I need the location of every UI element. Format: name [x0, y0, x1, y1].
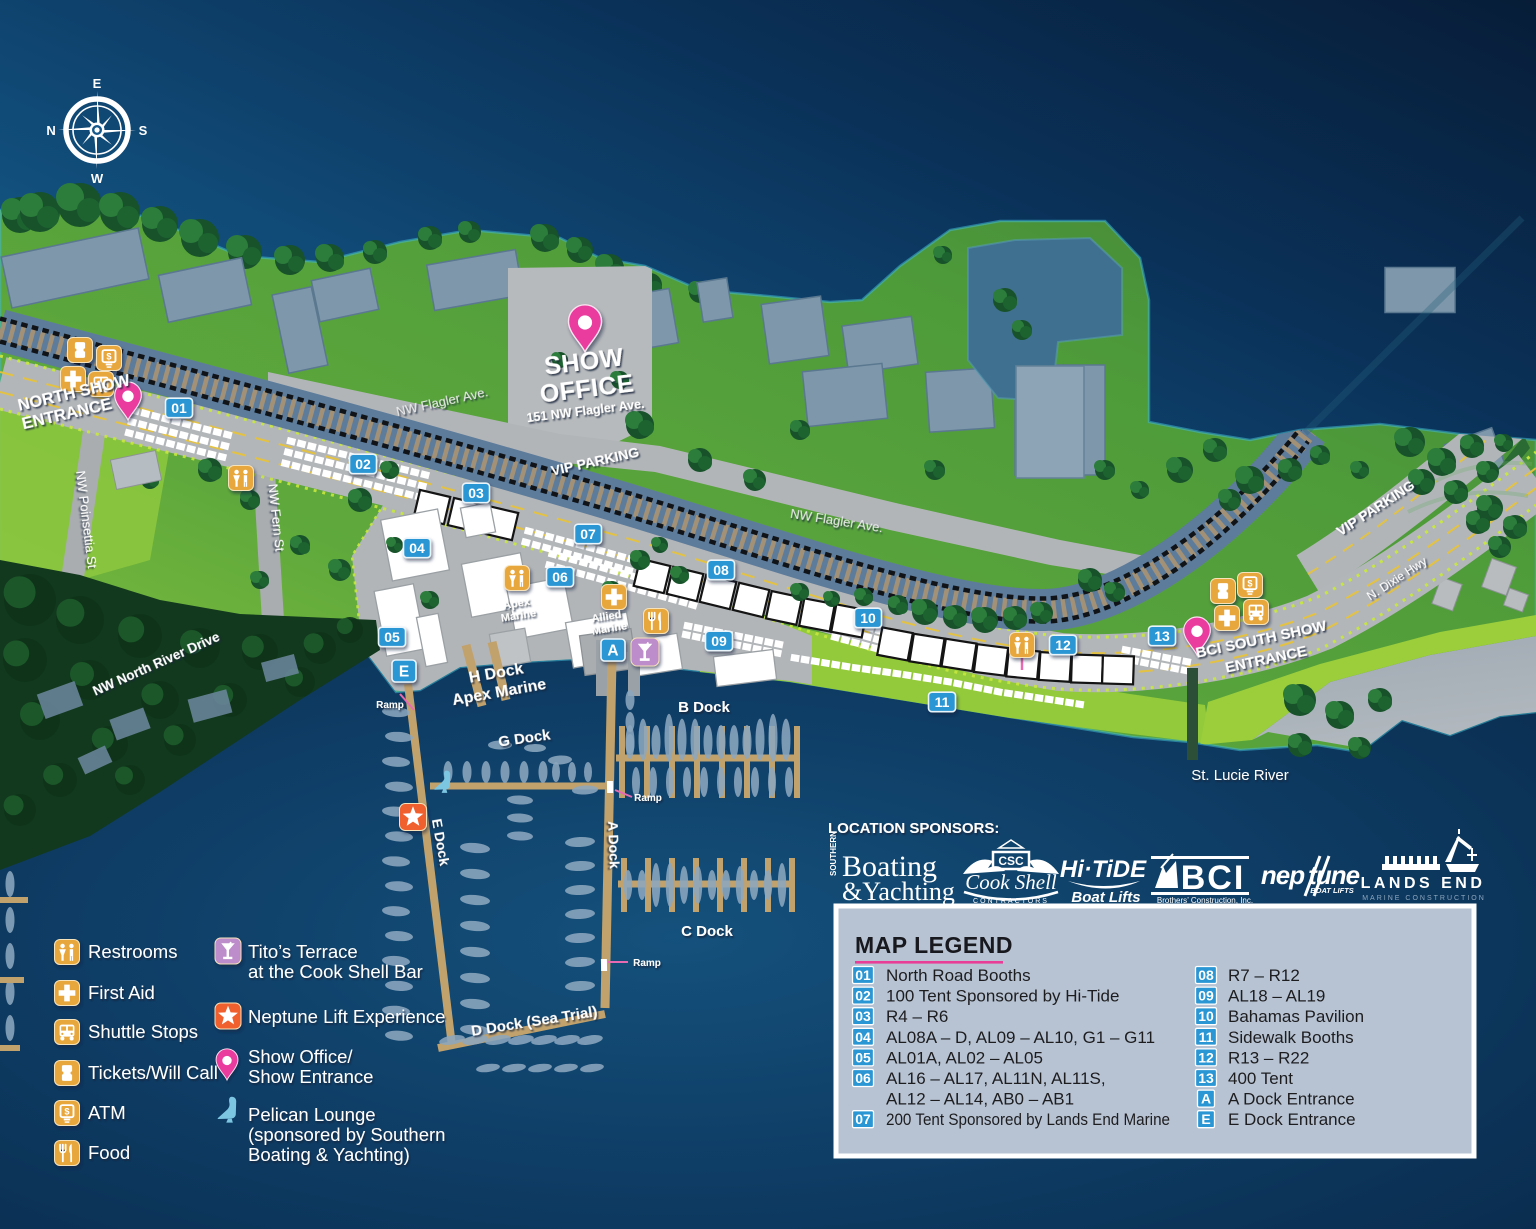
svg-text:R7 – R12: R7 – R12: [1228, 966, 1300, 985]
svg-text:First Aid: First Aid: [88, 982, 155, 1003]
svg-text:Show Office/: Show Office/: [248, 1046, 353, 1067]
svg-text:04: 04: [409, 540, 425, 556]
svg-text:E Dock Entrance: E Dock Entrance: [1228, 1110, 1356, 1129]
svg-text:Tito’s Terrace: Tito’s Terrace: [248, 941, 358, 962]
svg-text:Bahamas Pavilion: Bahamas Pavilion: [1228, 1007, 1364, 1026]
svg-text:A Dock: A Dock: [605, 821, 623, 869]
svg-text:A: A: [1201, 1091, 1211, 1107]
svg-text:13: 13: [1154, 628, 1170, 644]
svg-text:MARINE CONSTRUCTION: MARINE CONSTRUCTION: [1362, 895, 1486, 902]
svg-text:01: 01: [171, 400, 187, 416]
svg-text:A: A: [607, 643, 618, 660]
svg-text:Sidewalk Booths: Sidewalk Booths: [1228, 1028, 1354, 1047]
svg-text:Food: Food: [88, 1142, 130, 1163]
svg-text:01: 01: [855, 967, 871, 983]
svg-text:AL01A, AL02 – AL05: AL01A, AL02 – AL05: [886, 1048, 1043, 1067]
svg-text:MAP LEGEND: MAP LEGEND: [855, 932, 1013, 958]
svg-text:$: $: [106, 352, 112, 362]
svg-text:A Dock Entrance: A Dock Entrance: [1228, 1090, 1355, 1109]
svg-text:&Yachting: &Yachting: [842, 877, 955, 906]
svg-text:Boat Lifts: Boat Lifts: [1071, 889, 1140, 906]
svg-text:Show Entrance: Show Entrance: [248, 1066, 373, 1087]
svg-text:AL18 – AL19: AL18 – AL19: [1228, 987, 1325, 1006]
svg-text:Restrooms: Restrooms: [88, 941, 177, 962]
svg-text:10: 10: [860, 610, 876, 626]
svg-text:LOCATION SPONSORS:: LOCATION SPONSORS:: [828, 820, 999, 837]
svg-text:03: 03: [855, 1008, 871, 1024]
svg-text:Ramp: Ramp: [634, 793, 662, 804]
svg-text:AL08A – D, AL09 – AL10, G1 – G: AL08A – D, AL09 – AL10, G1 – G11: [886, 1028, 1155, 1047]
svg-text:E: E: [93, 76, 102, 91]
svg-text:04: 04: [855, 1029, 871, 1045]
svg-text:12: 12: [1198, 1049, 1214, 1065]
svg-text:02: 02: [355, 456, 371, 472]
svg-text:Tickets/Will Call: Tickets/Will Call: [88, 1062, 218, 1083]
svg-text:200 Tent Sponsored by Lands En: 200 Tent Sponsored by Lands End Marine: [886, 1110, 1170, 1129]
svg-text:R4 – R6: R4 – R6: [886, 1007, 948, 1026]
svg-text:ATM: ATM: [88, 1102, 126, 1123]
svg-text:CSC: CSC: [998, 854, 1024, 868]
svg-text:BCI: BCI: [1181, 859, 1246, 897]
svg-text:Ramp: Ramp: [376, 700, 404, 711]
svg-text:07: 07: [855, 1111, 871, 1127]
svg-text:E: E: [399, 664, 409, 681]
svg-text:St. Lucie River: St. Lucie River: [1191, 767, 1289, 784]
svg-text:B Dock: B Dock: [678, 699, 730, 716]
svg-text:N: N: [46, 123, 55, 138]
svg-text:03: 03: [468, 485, 484, 501]
svg-text:AL16 – AL17, AL11N, AL11S,: AL16 – AL17, AL11N, AL11S,: [886, 1069, 1106, 1088]
svg-text:400 Tent: 400 Tent: [1228, 1069, 1293, 1088]
svg-text:08: 08: [713, 562, 729, 578]
svg-text:11: 11: [935, 694, 950, 710]
svg-text:Pelican Lounge: Pelican Lounge: [248, 1104, 376, 1125]
svg-text:Hi·TiDE: Hi·TiDE: [1060, 856, 1147, 883]
svg-text:05: 05: [855, 1049, 871, 1065]
svg-text:BOAT LIFTS: BOAT LIFTS: [1310, 886, 1354, 895]
svg-text:Shuttle Stops: Shuttle Stops: [88, 1021, 198, 1042]
svg-text:Cook Shell: Cook Shell: [965, 870, 1057, 894]
svg-text:06: 06: [855, 1070, 871, 1086]
svg-text:09: 09: [1198, 988, 1214, 1004]
svg-text:R13 – R22: R13 – R22: [1228, 1048, 1309, 1067]
svg-text:LANDS END: LANDS END: [1361, 875, 1486, 892]
svg-text:E: E: [1201, 1111, 1210, 1127]
svg-text:05: 05: [384, 629, 400, 645]
svg-text:Ramp: Ramp: [633, 958, 661, 969]
svg-text:10: 10: [1198, 1008, 1214, 1024]
svg-text:SOUTHERN: SOUTHERN: [829, 831, 838, 876]
svg-text:S: S: [139, 123, 148, 138]
svg-text:02: 02: [855, 988, 871, 1004]
svg-text:(sponsored by Southern: (sponsored by Southern: [248, 1124, 445, 1145]
svg-text:Boating & Yachting): Boating & Yachting): [248, 1144, 410, 1165]
svg-text:13: 13: [1198, 1070, 1214, 1086]
svg-text:North Road Booths: North Road Booths: [886, 966, 1031, 985]
svg-text:12: 12: [1055, 637, 1071, 653]
svg-text:07: 07: [580, 526, 596, 542]
svg-text:at the Cook Shell Bar: at the Cook Shell Bar: [248, 961, 423, 982]
svg-text:W: W: [91, 171, 104, 186]
svg-text:C Dock: C Dock: [681, 923, 733, 940]
svg-text:06: 06: [552, 569, 568, 585]
svg-text:08: 08: [1198, 967, 1214, 983]
svg-text:09: 09: [711, 633, 727, 649]
svg-text:AL12 – AL14, AB0 – AB1: AL12 – AL14, AB0 – AB1: [886, 1090, 1074, 1109]
svg-text:$: $: [64, 1107, 70, 1117]
svg-text:Neptune Lift Experience: Neptune Lift Experience: [248, 1006, 445, 1027]
svg-text:$: $: [1247, 579, 1253, 589]
svg-text:100 Tent Sponsored by Hi-Tide: 100 Tent Sponsored by Hi-Tide: [886, 987, 1119, 1006]
svg-text:11: 11: [1199, 1029, 1214, 1045]
